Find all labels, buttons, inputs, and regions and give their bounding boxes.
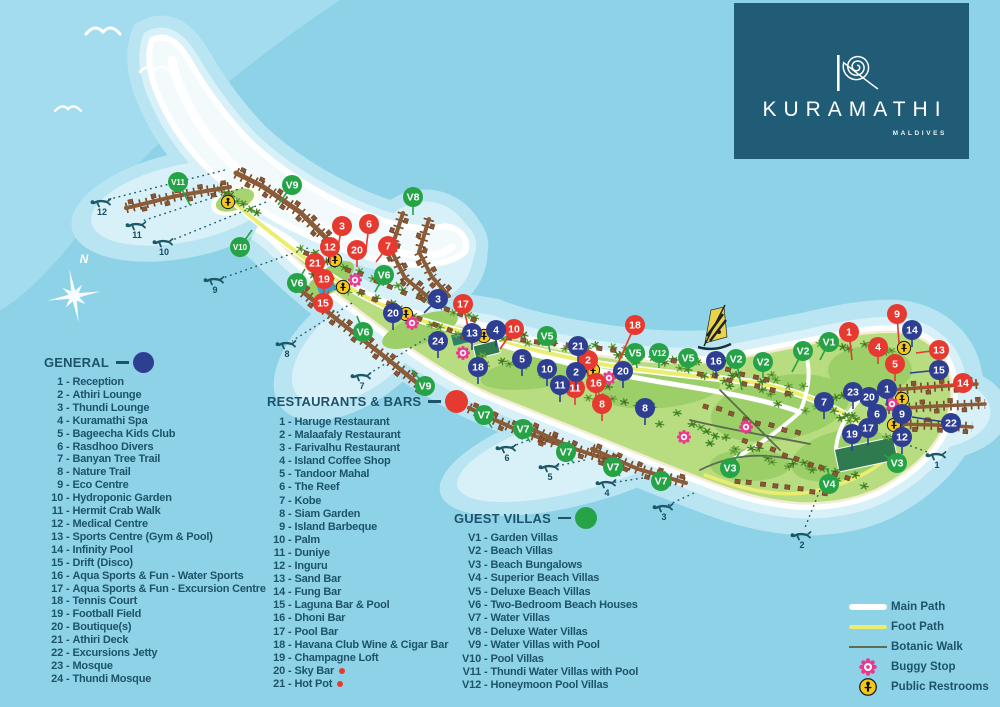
water-villa-building xyxy=(911,381,916,386)
legend-item-number: V12 xyxy=(454,679,481,692)
legend-item: 15-Laguna Bar & Pool xyxy=(267,599,468,612)
marker-label: V4 xyxy=(823,479,836,491)
marker-label: V11 xyxy=(171,178,185,187)
marker-label: V2 xyxy=(730,354,743,366)
marker-label: 19 xyxy=(318,274,330,286)
legend-item-separator: - xyxy=(481,572,490,585)
legend-item-separator: - xyxy=(481,679,490,692)
legend-item-label: Hydroponic Garden xyxy=(72,492,171,505)
legend-item: 17-Pool Bar xyxy=(267,626,468,639)
legend-item-separator: - xyxy=(63,415,72,428)
legend-restaurants-title: RESTAURANTS & BARS xyxy=(267,394,421,409)
marker-label: 19 xyxy=(846,429,858,441)
legend-restaurants: RESTAURANTS & BARS 1-Haruge Restaurant2-… xyxy=(267,390,468,691)
marker-label: 6 xyxy=(366,219,372,231)
legend-item-label: Water Villas xyxy=(490,612,549,625)
legend-item: 16-Dhoni Bar xyxy=(267,612,468,625)
legend-item-label: Dhoni Bar xyxy=(294,612,345,625)
marker-label: V9 xyxy=(286,180,299,192)
public-restrooms-icon xyxy=(845,678,891,696)
villa-building xyxy=(753,375,759,380)
dive-site-number: 11 xyxy=(132,230,142,240)
dive-site-number: 8 xyxy=(284,349,289,359)
legend-item: V2-Beach Villas xyxy=(454,545,638,558)
legend-dash xyxy=(428,400,441,402)
legend-restaurants-header: RESTAURANTS & BARS xyxy=(267,390,468,413)
legend-item-separator: - xyxy=(285,639,294,652)
marker-label: 1 xyxy=(846,327,852,339)
marker-label: V6 xyxy=(357,327,370,339)
legend-item-separator: - xyxy=(481,612,490,625)
marker-label: 16 xyxy=(590,378,602,390)
legend-item-number: 6 xyxy=(267,481,285,494)
legend-item-number: 12 xyxy=(44,518,63,531)
legend-item-number: 16 xyxy=(44,570,63,583)
legend-item: 8-Siam Garden xyxy=(267,508,468,521)
legend-item-label: Deluxe Beach Villas xyxy=(490,586,590,599)
legend-item: 10-Palm xyxy=(267,534,468,547)
marker-label: 17 xyxy=(457,299,469,311)
legend-item-label: Athiri Deck xyxy=(72,634,128,647)
legend-item-separator: - xyxy=(285,586,294,599)
legend-item-label: Inguru xyxy=(294,560,327,573)
legend-item-number: 10 xyxy=(44,492,63,505)
buggy-stop-icon[interactable] xyxy=(405,316,419,330)
path-legend-item: Foot Path xyxy=(845,617,989,637)
legend-general-title: GENERAL xyxy=(44,355,109,370)
marker-label: V6 xyxy=(291,278,304,290)
legend-item-separator: - xyxy=(63,531,72,544)
legend-item-number: 21 xyxy=(267,678,285,691)
legend-item-separator: - xyxy=(481,639,490,652)
legend-item-number: 20 xyxy=(267,665,285,678)
water-villa-building xyxy=(962,408,967,412)
buggy-stop-icon xyxy=(845,658,891,676)
legend-item-separator: - xyxy=(63,492,72,505)
legend-item-number: 13 xyxy=(44,531,63,544)
water-villa-building xyxy=(938,428,943,432)
legend-item: 14-Fung Bar xyxy=(267,586,468,599)
legend-item: 10-Hydroponic Garden xyxy=(44,492,266,505)
villa-building xyxy=(809,489,815,494)
marker-label: 18 xyxy=(629,320,641,332)
legend-item-label: Banyan Tree Trail xyxy=(72,453,160,466)
villa-building xyxy=(754,383,760,388)
legend-item: V12-Honeymoon Pool Villas xyxy=(454,679,638,692)
legend-item: 11-Hermit Crab Walk xyxy=(44,505,266,518)
legend-item-label: Laguna Bar & Pool xyxy=(294,599,389,612)
legend-item-label: Aqua Sports & Fun - Excursion Centre xyxy=(72,583,265,596)
legend-item-separator: - xyxy=(285,573,294,586)
legend-item-label: Boutique(s) xyxy=(72,621,131,634)
marker-label: V6 xyxy=(378,270,391,282)
legend-dash xyxy=(116,361,129,363)
marker-label: 6 xyxy=(874,409,880,421)
legend-item: 3-Farivalhu Restaurant xyxy=(267,442,468,455)
marker-label: 10 xyxy=(541,364,553,376)
general-marker-dot xyxy=(133,352,154,373)
legend-item: 2-Malaafaly Restaurant xyxy=(267,429,468,442)
marker-label: 12 xyxy=(324,242,336,254)
legend-item: 21-Hot Pot xyxy=(267,678,468,691)
legend-item-label: Honeymoon Pool Villas xyxy=(490,679,608,692)
legend-item: 2-Athiri Lounge xyxy=(44,389,266,402)
legend-item: 4-Kuramathi Spa xyxy=(44,415,266,428)
marker-label: 11 xyxy=(554,380,565,392)
legend-item-separator: - xyxy=(63,518,72,531)
legend-item-separator: - xyxy=(63,608,72,621)
dive-site-number: 1 xyxy=(934,460,939,470)
marker-label: 7 xyxy=(385,241,391,253)
legend-villas-header: GUEST VILLAS xyxy=(454,507,638,529)
legend-item-number: 15 xyxy=(44,557,63,570)
legend-item-label: Hot Pot xyxy=(294,678,332,691)
legend-item-label: Champagne Loft xyxy=(294,652,378,665)
marker-label: 3 xyxy=(339,221,345,233)
marker-label: V2 xyxy=(757,357,770,369)
water-villa-building xyxy=(920,400,925,404)
path-legend-item: Main Path xyxy=(845,597,989,617)
public-restroom-icon[interactable] xyxy=(897,341,910,354)
marker-label: 14 xyxy=(906,325,918,337)
legend-item-number: 12 xyxy=(267,560,285,573)
legend-item-number: 9 xyxy=(44,479,63,492)
legend-item: V4-Superior Beach Villas xyxy=(454,572,638,585)
legend-item-number: 7 xyxy=(44,453,63,466)
legend-item: 7-Banyan Tree Trail xyxy=(44,453,266,466)
legend-item-separator: - xyxy=(285,416,294,429)
legend-item: 13-Sand Bar xyxy=(267,573,468,586)
legend-item-separator: - xyxy=(285,508,294,521)
legend-item-number: 20 xyxy=(44,621,63,634)
legend-item-separator: - xyxy=(481,586,490,599)
legend-item: 5-Tandoor Mahal xyxy=(267,468,468,481)
legend-item-number: V6 xyxy=(454,599,481,612)
legend-item-separator: - xyxy=(481,653,490,666)
marker-label: V7 xyxy=(560,447,573,459)
legend-item: 19-Football Field xyxy=(44,608,266,621)
dive-site-number: 5 xyxy=(547,472,552,482)
legend-item-separator: - xyxy=(481,545,490,558)
public-restroom-icon[interactable] xyxy=(336,280,349,293)
marker-label: 5 xyxy=(892,359,898,371)
dive-site-number: 2 xyxy=(799,540,804,550)
legend-item-number: 21 xyxy=(44,634,63,647)
marker-label: 14 xyxy=(957,378,969,390)
legend-item: V7-Water Villas xyxy=(454,612,638,625)
water-villa-building xyxy=(963,429,968,433)
legend-item-separator: - xyxy=(63,428,72,441)
buggy-stop-icon[interactable] xyxy=(456,346,470,360)
villa-building xyxy=(764,377,770,382)
legend-item-label: Pool Bar xyxy=(294,626,338,639)
buggy-stop-icon[interactable] xyxy=(739,420,753,434)
legend-general: GENERAL 1-Reception2-Athiri Lounge3-Thun… xyxy=(44,352,266,686)
marker-label: 23 xyxy=(847,387,859,399)
legend-item-label: Island Coffee Shop xyxy=(294,455,390,468)
water-villa-building xyxy=(975,397,980,401)
path-legend-label: Public Restrooms xyxy=(891,681,989,693)
path-legend-label: Main Path xyxy=(891,601,945,613)
legend-item: 14-Infinity Pool xyxy=(44,544,266,557)
legend-item: 5-Bageecha Kids Club xyxy=(44,428,266,441)
dive-site-number: 6 xyxy=(504,453,509,463)
legend-general-header: GENERAL xyxy=(44,352,266,373)
brand-name: KURAMATHI xyxy=(734,98,969,122)
dive-site-number: 4 xyxy=(604,488,609,498)
legend-item-separator: - xyxy=(63,595,72,608)
map-marker-villa-V7[interactable]: V7 xyxy=(603,457,623,477)
marker-label: V12 xyxy=(652,349,667,358)
marker-label: V3 xyxy=(724,463,737,475)
legend-item-number: 11 xyxy=(44,505,63,518)
legend-item-separator: - xyxy=(285,481,294,494)
legend-item-label: Infinity Pool xyxy=(72,544,132,557)
legend-item-separator: - xyxy=(285,599,294,612)
legend-item: 8-Nature Trail xyxy=(44,466,266,479)
legend-item: 3-Thundi Lounge xyxy=(44,402,266,415)
legend-item: 1-Reception xyxy=(44,376,266,389)
legend-item-separator: - xyxy=(481,626,490,639)
legend-item: 18-Tennis Court xyxy=(44,595,266,608)
marker-label: V7 xyxy=(478,410,491,422)
marker-label: 8 xyxy=(642,403,648,415)
legend-item-label: Nature Trail xyxy=(72,466,130,479)
legend-item-separator: - xyxy=(63,557,72,570)
dive-site-number: 3 xyxy=(661,512,666,522)
legend-item-label: Sports Centre (Gym & Pool) xyxy=(72,531,212,544)
legend-item-number: V8 xyxy=(454,626,481,639)
buggy-stop-icon[interactable] xyxy=(348,273,362,287)
legend-item-label: Duniye xyxy=(294,547,329,560)
legend-item-separator: - xyxy=(285,455,294,468)
legend-item-separator: - xyxy=(63,389,72,402)
villa-building xyxy=(697,371,703,376)
legend-item-label: Siam Garden xyxy=(294,508,360,521)
marker-label: 12 xyxy=(896,432,908,444)
legend-item-separator: - xyxy=(481,559,490,572)
main-path-icon xyxy=(845,604,891,610)
legend-item-number: 16 xyxy=(267,612,285,625)
water-villa-building xyxy=(926,390,931,395)
marker-label: 16 xyxy=(710,356,722,368)
legend-item: 13-Sports Centre (Gym & Pool) xyxy=(44,531,266,544)
legend-item-label: Haruge Restaurant xyxy=(294,416,389,429)
legend-item-number: 6 xyxy=(44,441,63,454)
legend-item-separator: - xyxy=(285,429,294,442)
legend-item-separator: - xyxy=(285,652,294,665)
legend-item: 17-Aqua Sports & Fun - Excursion Centre xyxy=(44,583,266,596)
villa-building xyxy=(597,346,603,351)
legend-item-number: V9 xyxy=(454,639,481,652)
water-villa-building xyxy=(165,201,171,206)
legend-item-separator: - xyxy=(285,665,294,678)
legend-item-label: Thundi Lounge xyxy=(72,402,149,415)
marker-label: 15 xyxy=(317,298,329,310)
legend-item-separator: - xyxy=(63,647,72,660)
legend-item-label: Drift (Disco) xyxy=(72,557,132,570)
legend-item-separator: - xyxy=(63,441,72,454)
legend-item: 11-Duniye xyxy=(267,547,468,560)
path-legend-label: Foot Path xyxy=(891,621,944,633)
new-item-dot xyxy=(337,681,343,687)
legend-item: V6-Two-Bedroom Beach Houses xyxy=(454,599,638,612)
water-villa-building xyxy=(912,427,917,431)
map-marker-villa-V7[interactable]: V7 xyxy=(556,442,576,462)
legend-item-label: Palm xyxy=(294,534,320,547)
legend-item-number: 1 xyxy=(267,416,285,429)
legend-item-label: Excursions Jetty xyxy=(72,647,157,660)
marker-label: V5 xyxy=(541,331,554,343)
dive-site-number: 10 xyxy=(159,247,169,257)
marker-label: 17 xyxy=(862,423,874,435)
legend-item-separator: - xyxy=(481,599,490,612)
legend-item-separator: - xyxy=(285,547,294,560)
marker-label: V8 xyxy=(407,192,420,204)
legend-item-number: 14 xyxy=(44,544,63,557)
legend-item-number: 9 xyxy=(267,521,285,534)
legend-item-label: Beach Villas xyxy=(490,545,552,558)
villa-building xyxy=(725,367,731,372)
legend-item-separator: - xyxy=(63,570,72,583)
legend-item-label: Tennis Court xyxy=(72,595,137,608)
legend-item-separator: - xyxy=(63,453,72,466)
legend-item-label: Garden Villas xyxy=(490,532,558,545)
legend-item-label: Superior Beach Villas xyxy=(490,572,599,585)
legend-item-number: 10 xyxy=(267,534,285,547)
legend-item-separator: - xyxy=(63,583,72,596)
legend-item: V5-Deluxe Beach Villas xyxy=(454,586,638,599)
legend-item-label: Football Field xyxy=(72,608,141,621)
marker-label: 20 xyxy=(387,308,399,320)
marker-label: 21 xyxy=(309,258,321,270)
map-marker-villa-V7[interactable]: V7 xyxy=(651,471,671,491)
legend-item-number: V2 xyxy=(454,545,481,558)
legend-item-number: 5 xyxy=(267,468,285,481)
buggy-stop-icon[interactable] xyxy=(677,430,691,444)
marker-label: V7 xyxy=(655,476,668,488)
legend-item-separator: - xyxy=(285,534,294,547)
legend-item: 4-Island Coffee Shop xyxy=(267,455,468,468)
legend-item-label: Mosque xyxy=(72,660,112,673)
water-villa-building xyxy=(948,398,953,402)
marker-label: 24 xyxy=(432,336,444,348)
legend-item-label: Deluxe Water Villas xyxy=(490,626,587,639)
villa-building xyxy=(712,373,718,378)
legend-item: 1-Haruge Restaurant xyxy=(267,416,468,429)
water-villa-building xyxy=(197,184,202,189)
legend-item-number: 4 xyxy=(267,455,285,468)
marker-label: V5 xyxy=(629,348,642,360)
legend-item-separator: - xyxy=(63,660,72,673)
marker-label: 13 xyxy=(466,328,478,340)
marker-label: 3 xyxy=(435,294,441,306)
legend-item-separator: - xyxy=(285,626,294,639)
villa-building xyxy=(741,381,747,386)
logo-spiral-icon xyxy=(734,3,969,98)
dive-site-number: 12 xyxy=(97,207,107,217)
water-villa-building xyxy=(934,409,939,413)
legend-item-number: 2 xyxy=(267,429,285,442)
resort-map-page: N xyxy=(0,0,1000,707)
legend-item: 6-Rasdhoo Divers xyxy=(44,441,266,454)
legend-item-separator: - xyxy=(285,442,294,455)
path-legend: Main PathFoot PathBotanic Walk Buggy Sto… xyxy=(845,597,989,697)
marker-label: 1 xyxy=(884,384,890,396)
marker-label: 20 xyxy=(617,366,629,378)
path-legend-label: Botanic Walk xyxy=(891,641,963,653)
legend-item-label: Rasdhoo Divers xyxy=(72,441,153,454)
legend-item-label: Malaafaly Restaurant xyxy=(294,429,400,442)
legend-item-label: Eco Centre xyxy=(72,479,128,492)
legend-item-label: Water Villas with Pool xyxy=(490,639,599,652)
legend-item-number: 4 xyxy=(44,415,63,428)
legend-item-separator: - xyxy=(285,468,294,481)
legend-item-number: V3 xyxy=(454,559,481,572)
legend-item-label: Tandoor Mahal xyxy=(294,468,369,481)
public-restroom-icon[interactable] xyxy=(221,195,234,208)
legend-item-number: V11 xyxy=(454,666,481,679)
legend-item-label: Reception xyxy=(72,376,123,389)
legend-item-label: Two-Bedroom Beach Houses xyxy=(490,599,637,612)
path-legend-item: Public Restrooms xyxy=(845,677,989,697)
legend-item: 22-Excursions Jetty xyxy=(44,647,266,660)
legend-item: 7-Kobe xyxy=(267,495,468,508)
legend-villas: GUEST VILLAS V1-Garden VillasV2-Beach Vi… xyxy=(454,507,638,693)
legend-item-separator: - xyxy=(63,505,72,518)
legend-item-label: Hermit Crab Walk xyxy=(72,505,160,518)
legend-item: 9-Island Barbeque xyxy=(267,521,468,534)
legend-item-separator: - xyxy=(481,666,490,679)
marker-label: 20 xyxy=(863,392,875,404)
legend-item-number: 7 xyxy=(267,495,285,508)
legend-item: 19-Champagne Loft xyxy=(267,652,468,665)
legend-item-separator: - xyxy=(63,634,72,647)
marker-label: V3 xyxy=(891,458,904,470)
legend-item: V1-Garden Villas xyxy=(454,532,638,545)
villa-building xyxy=(770,387,776,392)
marker-label: V10 xyxy=(233,243,248,252)
legend-item: 6-The Reef xyxy=(267,481,468,494)
legend-item: 18-Havana Club Wine & Cigar Bar xyxy=(267,639,468,652)
legend-item-number: 17 xyxy=(44,583,63,596)
villa-building xyxy=(784,485,790,490)
legend-item-label: Pool Villas xyxy=(490,653,543,666)
marker-label: 10 xyxy=(508,324,520,336)
villa-building xyxy=(785,391,791,396)
legend-item-separator: - xyxy=(63,673,72,686)
legend-item-number: 5 xyxy=(44,428,63,441)
marker-label: 8 xyxy=(599,399,605,411)
villa-building xyxy=(610,348,616,353)
water-villa-building xyxy=(142,206,148,211)
dive-site-number: 9 xyxy=(212,285,217,295)
water-villa-building xyxy=(211,193,216,198)
villa-marker-dot xyxy=(575,507,597,529)
path-legend-item: Botanic Walk xyxy=(845,637,989,657)
botanic-walk-icon xyxy=(845,646,891,649)
marker-label: 7 xyxy=(821,397,827,409)
legend-item-number: 8 xyxy=(267,508,285,521)
brand-subtitle: MALDIVES xyxy=(893,130,947,137)
villa-building xyxy=(726,378,732,383)
legend-item: 12-Inguru xyxy=(267,560,468,573)
legend-item: 20-Boutique(s) xyxy=(44,621,266,634)
legend-item-label: Medical Centre xyxy=(72,518,147,531)
legend-item-number: V10 xyxy=(454,653,481,666)
legend-item: V9-Water Villas with Pool xyxy=(454,639,638,652)
marker-label: 5 xyxy=(519,354,525,366)
